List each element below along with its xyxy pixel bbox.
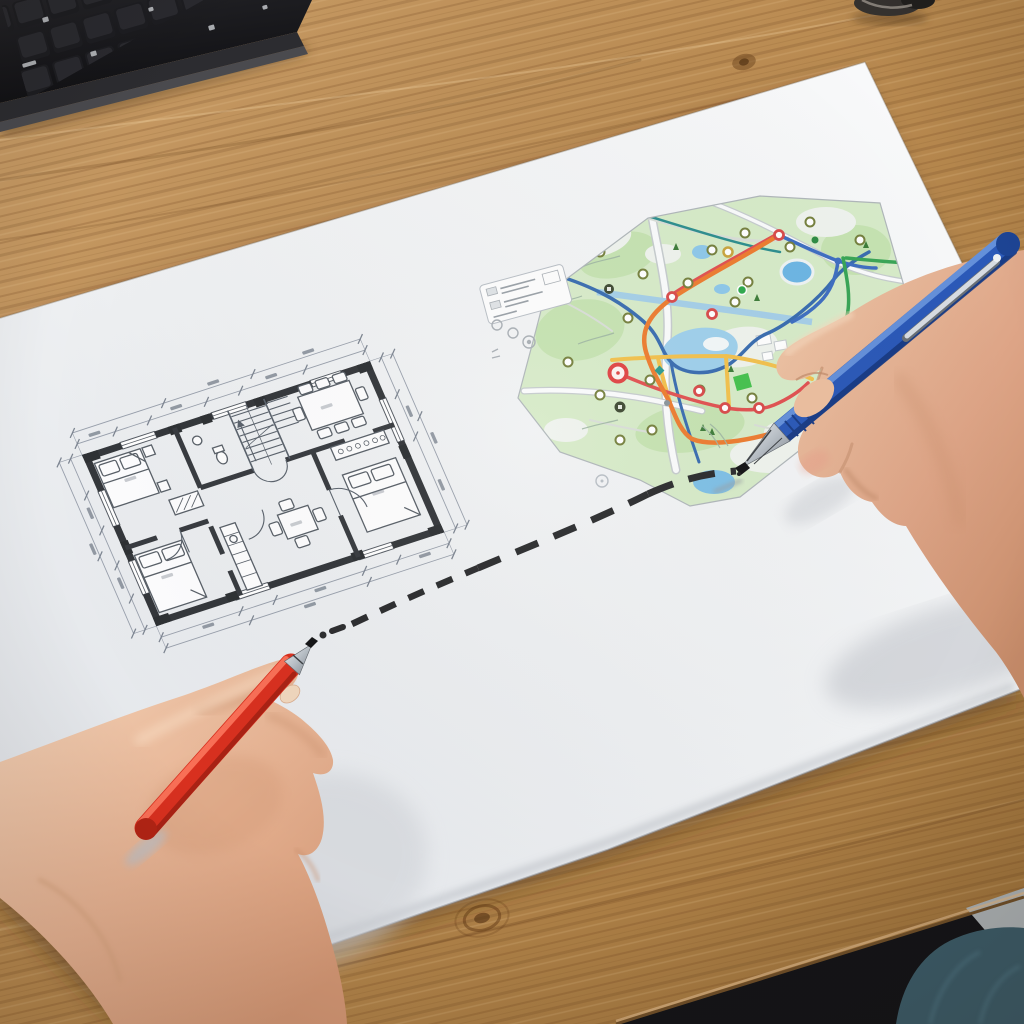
red-pen-cap-end xyxy=(135,818,157,840)
marker-green-node xyxy=(738,286,747,295)
ink-dot xyxy=(737,472,741,476)
blue-pen-cap-end xyxy=(996,232,1020,256)
desk-photo-stage xyxy=(0,0,1024,1024)
marker-yellow-ring xyxy=(724,248,733,257)
pond-top-right xyxy=(781,260,813,284)
desk-photo xyxy=(0,0,1024,1024)
